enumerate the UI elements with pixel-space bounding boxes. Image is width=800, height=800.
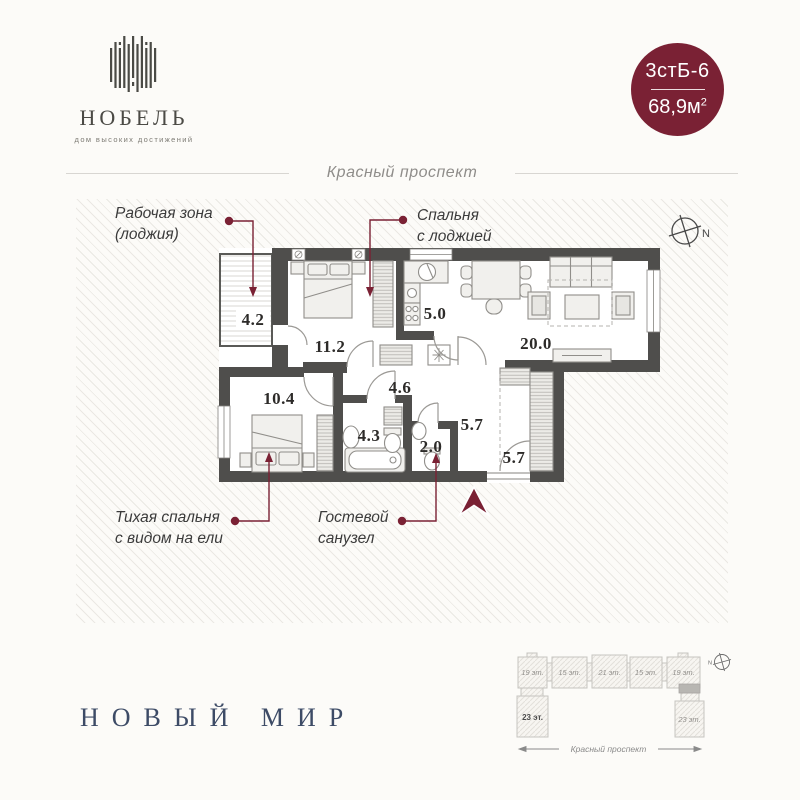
- hall-wardrobe: [530, 372, 553, 471]
- arrow-left-icon: [519, 747, 526, 752]
- room-label-bath: 4.3: [358, 426, 381, 445]
- nightstand: [352, 262, 365, 274]
- site-block-3-label: 21 эт.: [597, 668, 620, 677]
- nightstand: [240, 453, 251, 467]
- hall-cabinet: [380, 345, 412, 365]
- dining-table: [472, 261, 520, 299]
- leader-dot: [225, 217, 233, 225]
- chair: [520, 266, 531, 279]
- toilet: [385, 434, 401, 453]
- unit-area-value: 68,9м: [648, 96, 701, 118]
- unit-code: 3стБ-6: [645, 60, 709, 83]
- unit-badge: 3стБ-6 68,9м2: [631, 43, 724, 136]
- entry-door-gap: [487, 470, 530, 483]
- nightstand: [291, 262, 304, 274]
- room-label-hall-a: 5.7: [461, 415, 484, 434]
- coffee-table: [565, 295, 599, 319]
- site-compass-icon: [713, 653, 731, 671]
- site-block-4-label: 15 эт.: [635, 668, 657, 677]
- washing-machine: [384, 407, 402, 425]
- developer-logo: НОВЫЙ МИР: [80, 703, 356, 733]
- room-label-hall-b: 5.7: [503, 448, 526, 467]
- entrance-arrow-icon: [460, 487, 489, 515]
- floor-plan: 4.2 11.2 5.0 20.0 10.4 4.6 4.3 2.0 5.7 5…: [60, 195, 740, 540]
- chair: [461, 266, 472, 279]
- site-blocks: [517, 653, 704, 737]
- chair: [461, 284, 472, 297]
- street-rule-right: [515, 173, 738, 174]
- brand-logo: НОБЕЛЬ дом высоких достижений: [74, 36, 194, 144]
- compass-icon: [669, 215, 701, 247]
- site-street-label: Красный проспект: [571, 744, 647, 754]
- room-label-bedroom2: 10.4: [263, 389, 295, 408]
- shoe-cabinet: [500, 368, 530, 385]
- leader-dot: [398, 517, 406, 525]
- loggia-floor: [220, 254, 272, 346]
- chair: [486, 299, 502, 314]
- arrow-right-icon: [694, 747, 701, 752]
- room-label-wc: 2.0: [420, 437, 443, 456]
- street-row: Красный проспект: [66, 163, 738, 183]
- room-label-living: 20.0: [520, 334, 552, 353]
- floorplan-poster: НОБЕЛЬ дом высоких достижений 3стБ-6 68,…: [0, 0, 800, 800]
- room-label-loggia: 4.2: [242, 310, 265, 329]
- brand-tagline: дом высоких достижений: [74, 135, 194, 144]
- sofa: [550, 257, 612, 287]
- street-name-top: Красный проспект: [327, 164, 478, 182]
- site-tower-left-label: 23 эт.: [522, 713, 543, 722]
- site-tower-right-label: 23 эт.: [677, 715, 700, 724]
- leader-dot: [399, 216, 407, 224]
- unit-area: 68,9м2: [648, 96, 707, 119]
- brand-name: НОБЕЛЬ: [74, 105, 194, 131]
- compass-n-label: N: [702, 228, 710, 240]
- room-label-kitchen: 5.0: [424, 304, 447, 323]
- site-compass-n-label: N: [708, 661, 712, 667]
- site-block-2-label: 15 эт.: [558, 668, 580, 677]
- stove: [404, 303, 420, 325]
- room-label-bedroom1: 11.2: [315, 337, 346, 356]
- leader-dot: [231, 517, 239, 525]
- bath-sink: [343, 426, 359, 448]
- room-label-hall: 4.6: [389, 378, 412, 397]
- site-block-1-label: 19 эт.: [521, 668, 543, 677]
- site-highlight-unit: [679, 684, 700, 693]
- wardrobe-2: [317, 415, 333, 471]
- nightstand: [303, 453, 314, 467]
- badge-divider: [651, 89, 705, 90]
- site-block-5-label: 19 эт.: [672, 668, 694, 677]
- unit-area-sup: 2: [701, 96, 707, 108]
- wardrobe-1: [373, 261, 393, 327]
- building-site-plan: 19 эт. 15 эт. 21 эт. 15 эт. 19 эт. 23 эт…: [495, 641, 747, 765]
- brand-logo-icon: [107, 36, 161, 94]
- street-rule-left: [66, 173, 289, 174]
